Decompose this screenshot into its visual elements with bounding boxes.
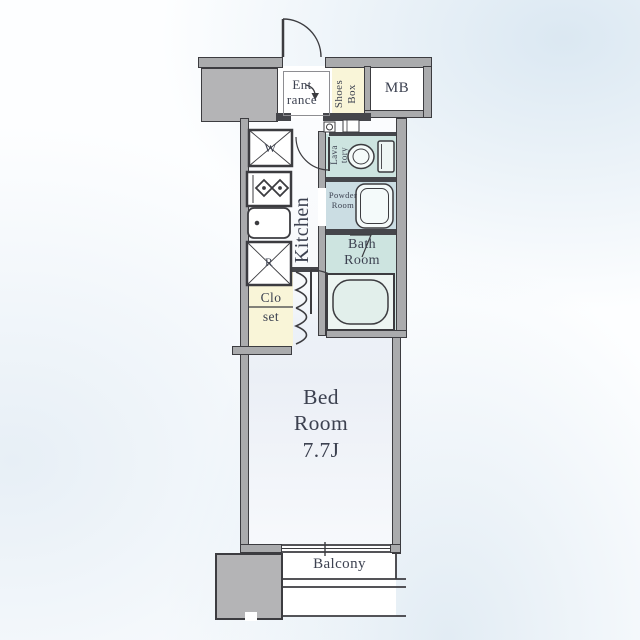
bed-room-size-label: 7.7J — [249, 437, 393, 463]
bed-room-label-line1: Bed — [249, 384, 393, 410]
bed-room-label-line2: Room — [249, 410, 393, 436]
kitchen-label: Kitchen — [288, 185, 316, 275]
closet-label-line1: Clo — [249, 290, 293, 306]
stove-icon — [247, 172, 291, 206]
shoes-box-label: Shoes Box — [333, 74, 361, 114]
shoes-box-label-line1: Shoes — [333, 74, 346, 114]
lavatory-fixture-icons — [324, 120, 359, 132]
closet-label-line2: set — [249, 309, 293, 325]
entrance-label: Ent rance — [274, 78, 330, 110]
shoes-box-label-line2: Box — [346, 74, 359, 114]
lavatory-label: Lava tory — [329, 139, 351, 171]
bath-room-label: Bath Room — [331, 237, 393, 273]
kitchen-sink-icon — [248, 208, 290, 238]
window-icon — [282, 542, 390, 556]
closet-folding-door-icon — [296, 272, 307, 344]
bed-room-label: Bed Room 7.7J — [249, 384, 393, 468]
entrance-label-line2: rance — [274, 93, 330, 108]
entrance-label-line1: Ent — [274, 78, 330, 93]
lavatory-door-icon — [296, 137, 329, 171]
vanity-sink-icon — [356, 184, 393, 228]
powder-room-label: Powder Room — [326, 191, 360, 213]
meter-box-label: MB — [371, 66, 423, 110]
bath-room-label-line1: Bath — [331, 237, 393, 253]
floorplan-canvas: Ent rance Shoes Box MB W Kitchen Lava to… — [0, 0, 640, 640]
refrigerator-label: R — [247, 242, 291, 285]
entrance-door-icon — [283, 19, 321, 57]
lavatory-label-line1: Lava — [329, 139, 339, 171]
bath-room-label-line2: Room — [331, 253, 393, 269]
bathtub-icon — [327, 274, 394, 330]
toilet-icon — [348, 141, 394, 172]
powder-room-label-line2: Room — [326, 201, 360, 211]
balcony-label: Balcony — [283, 556, 396, 576]
washer-label: W — [249, 130, 292, 166]
lavatory-label-line2: tory — [339, 139, 349, 171]
